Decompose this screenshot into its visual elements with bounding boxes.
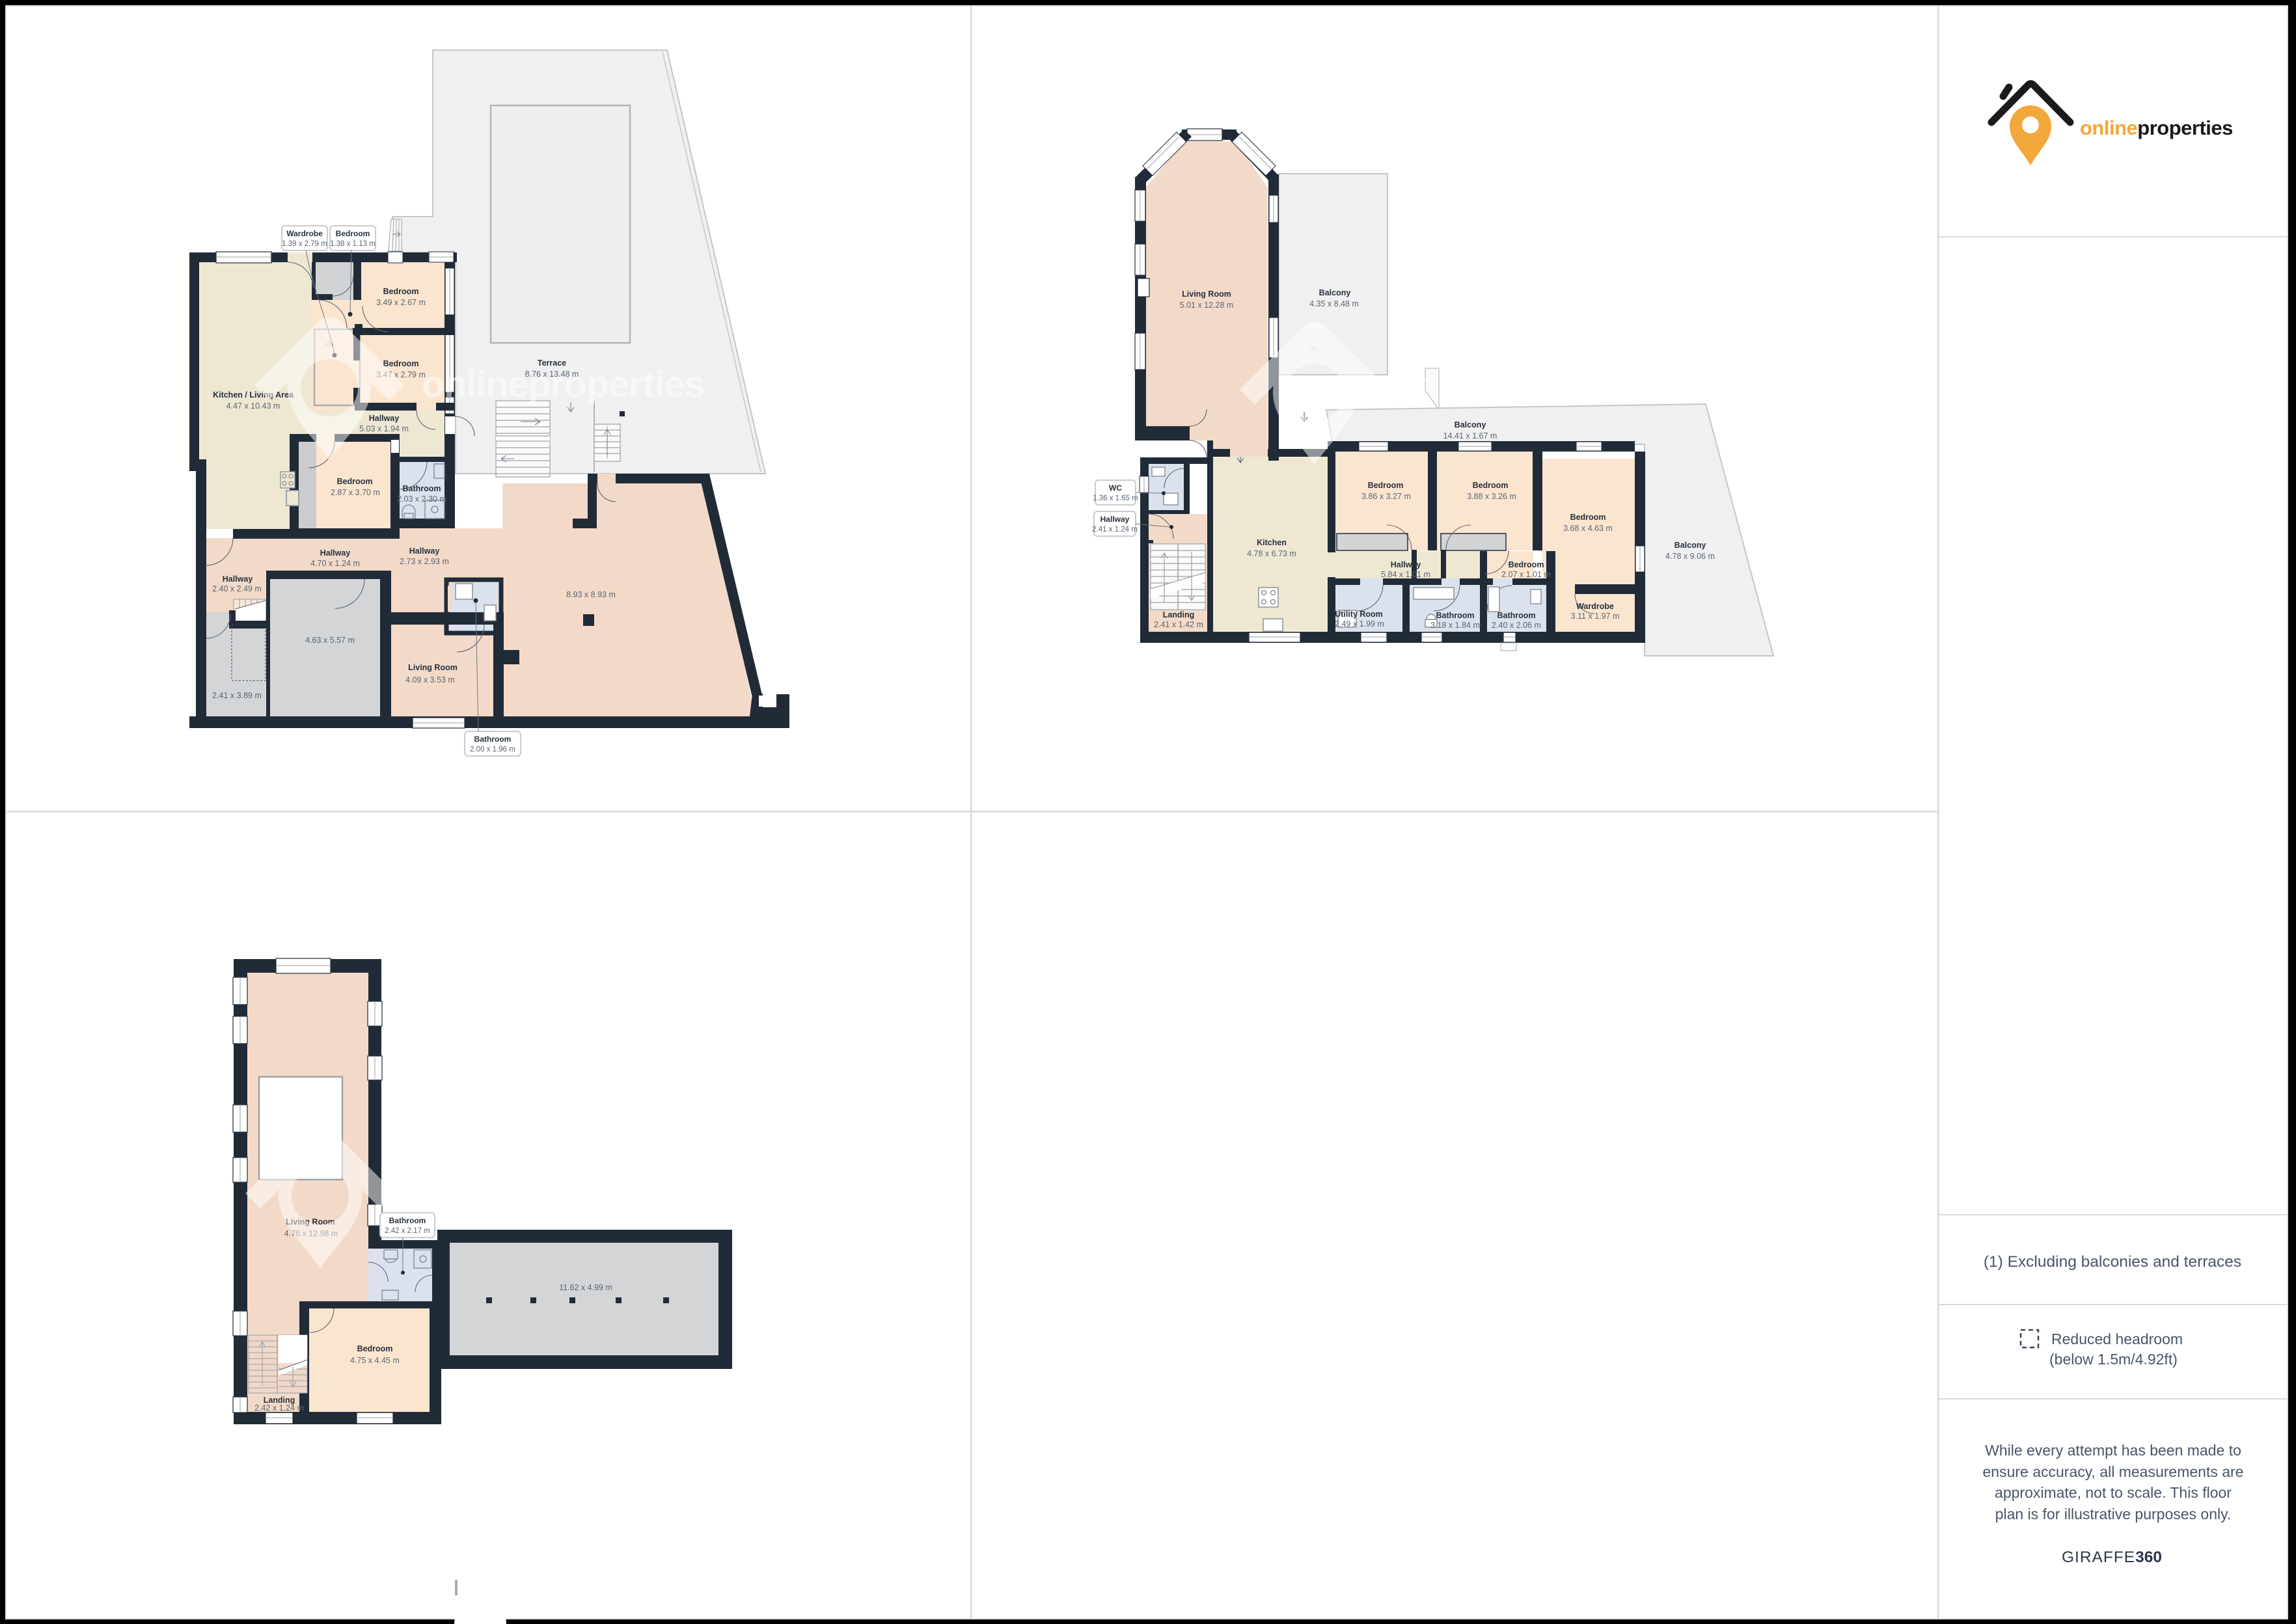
svg-text:3.86 x 3.27 m: 3.86 x 3.27 m	[1361, 492, 1411, 501]
svg-text:2.49 x 1.99 m: 2.49 x 1.99 m	[1335, 619, 1384, 629]
svg-text:Bedroom: Bedroom	[383, 287, 419, 296]
svg-text:1.39 x 2.79 m: 1.39 x 2.79 m	[282, 240, 327, 248]
svg-text:onlineproperties: onlineproperties	[422, 364, 704, 405]
svg-text:(1) Excluding balconies and te: (1) Excluding balconies and terraces	[1984, 1253, 2241, 1271]
svg-text:Balcony: Balcony	[1455, 420, 1486, 429]
svg-text:4.47 x 10.43 m: 4.47 x 10.43 m	[226, 401, 280, 411]
svg-text:3.88 x 3.26 m: 3.88 x 3.26 m	[1467, 492, 1516, 501]
svg-text:Bedroom: Bedroom	[337, 477, 373, 486]
svg-text:2.42 x 1.24 m: 2.42 x 1.24 m	[254, 1403, 304, 1413]
svg-text:2.41 x 3.89 m: 2.41 x 3.89 m	[212, 691, 262, 700]
svg-text:ensure accuracy, all measureme: ensure accuracy, all measurements are	[1983, 1463, 2244, 1480]
svg-text:onlineproperties: onlineproperties	[2080, 116, 2233, 139]
svg-text:onlineproperties: onlineproperties	[1393, 365, 1675, 407]
svg-text:3.18 x 1.84 m: 3.18 x 1.84 m	[1430, 621, 1480, 630]
svg-text:11.62 x 4.99 m: 11.62 x 4.99 m	[559, 1283, 612, 1292]
svg-text:Bathroom: Bathroom	[402, 484, 441, 493]
svg-text:GIRAFFE360: GIRAFFE360	[2062, 1549, 2162, 1566]
svg-text:Reduced headroom: Reduced headroom	[2051, 1331, 2183, 1347]
svg-text:Bedroom: Bedroom	[336, 229, 370, 238]
svg-text:2.40 x 2.49 m: 2.40 x 2.49 m	[212, 584, 262, 593]
svg-text:8.93 x 8.93 m: 8.93 x 8.93 m	[566, 590, 616, 599]
svg-text:4.78 x 6.73 m: 4.78 x 6.73 m	[1247, 549, 1296, 558]
svg-text:Wardrobe: Wardrobe	[1576, 602, 1614, 611]
svg-text:Balcony: Balcony	[1319, 288, 1351, 297]
svg-text:3.11 x 1.97 m: 3.11 x 1.97 m	[1571, 612, 1620, 621]
svg-text:Bedroom: Bedroom	[1368, 481, 1404, 490]
svg-text:2.00 x 1.96 m: 2.00 x 1.96 m	[470, 746, 515, 753]
svg-text:2.03 x 2.30 m: 2.03 x 2.30 m	[397, 494, 446, 504]
svg-text:Utility Room: Utility Room	[1335, 610, 1383, 619]
svg-text:4.35 x 8.48 m: 4.35 x 8.48 m	[1309, 299, 1359, 308]
svg-text:Bedroom: Bedroom	[1509, 560, 1544, 569]
svg-text:Balcony: Balcony	[1674, 541, 1706, 550]
svg-text:2.73 x 2.93 m: 2.73 x 2.93 m	[400, 557, 449, 566]
svg-text:Hallway: Hallway	[409, 547, 440, 556]
svg-text:Bathroom: Bathroom	[1436, 611, 1474, 620]
svg-text:4.63 x 5.57 m: 4.63 x 5.57 m	[305, 636, 355, 645]
svg-text:1.38 x 1.13 m: 1.38 x 1.13 m	[330, 240, 376, 248]
svg-text:Bedroom: Bedroom	[1473, 481, 1509, 490]
svg-text:Hallway: Hallway	[320, 548, 351, 558]
svg-text:Bedroom: Bedroom	[1570, 513, 1606, 522]
svg-text:Bathroom: Bathroom	[474, 735, 512, 744]
svg-text:2.87 x 3.70 m: 2.87 x 3.70 m	[331, 488, 380, 497]
svg-text:WC: WC	[1109, 483, 1122, 493]
svg-text:3.49 x 2.67 m: 3.49 x 2.67 m	[376, 298, 426, 307]
svg-text:Landing: Landing	[1163, 610, 1195, 619]
svg-text:Kitchen: Kitchen	[1257, 538, 1287, 547]
svg-text:Living Room: Living Room	[1182, 290, 1231, 299]
svg-text:Bathroom: Bathroom	[1497, 611, 1535, 620]
svg-text:4.75 x 4.45 m: 4.75 x 4.45 m	[350, 1356, 400, 1365]
svg-text:Living Room: Living Room	[408, 663, 458, 672]
svg-text:3.68 x 4.63 m: 3.68 x 4.63 m	[1563, 524, 1613, 533]
svg-text:2.41 x 1.42 m: 2.41 x 1.42 m	[1154, 620, 1203, 629]
svg-text:2.07 x 1.01 m: 2.07 x 1.01 m	[1501, 570, 1551, 579]
svg-text:approximate, not to scale. Thi: approximate, not to scale. This floor	[1995, 1484, 2232, 1501]
svg-text:Bedroom: Bedroom	[383, 359, 419, 368]
svg-text:(below 1.5m/4.92ft): (below 1.5m/4.92ft)	[2049, 1351, 2178, 1368]
svg-text:2.40 x 2.06 m: 2.40 x 2.06 m	[1492, 621, 1541, 630]
svg-text:Bathroom: Bathroom	[389, 1216, 426, 1225]
svg-text:4.09 x 3.53 m: 4.09 x 3.53 m	[405, 675, 455, 684]
svg-text:5.03 x 1.94 m: 5.03 x 1.94 m	[359, 424, 409, 433]
svg-text:1.36 x 1.65 m: 1.36 x 1.65 m	[1093, 494, 1138, 502]
svg-text:Hallway: Hallway	[1100, 515, 1130, 524]
svg-text:Kitchen / Living Area: Kitchen / Living Area	[213, 390, 294, 399]
svg-text:14.41 x 1.67 m: 14.41 x 1.67 m	[1443, 431, 1497, 440]
svg-text:Hallway: Hallway	[223, 575, 253, 584]
svg-text:4.70 x 1.24 m: 4.70 x 1.24 m	[310, 559, 360, 568]
svg-text:plan is for illustrative purpo: plan is for illustrative purposes only.	[1995, 1506, 2232, 1522]
svg-text:4.78 x 9.06 m: 4.78 x 9.06 m	[1665, 552, 1715, 561]
svg-text:Hallway: Hallway	[369, 414, 400, 423]
svg-text:5.01 x 12.28 m: 5.01 x 12.28 m	[1180, 301, 1234, 310]
svg-text:5.84 x 1.01 m: 5.84 x 1.01 m	[1381, 570, 1430, 579]
svg-text:2.42 x 2.17 m: 2.42 x 2.17 m	[385, 1227, 430, 1235]
svg-text:Wardrobe: Wardrobe	[286, 229, 323, 238]
svg-text:While every attempt has been m: While every attempt has been made to	[1985, 1442, 2241, 1459]
svg-text:Bedroom: Bedroom	[357, 1344, 393, 1353]
svg-text:Hallway: Hallway	[1391, 560, 1421, 569]
svg-text:2.41 x 1.24 m: 2.41 x 1.24 m	[1092, 526, 1138, 534]
